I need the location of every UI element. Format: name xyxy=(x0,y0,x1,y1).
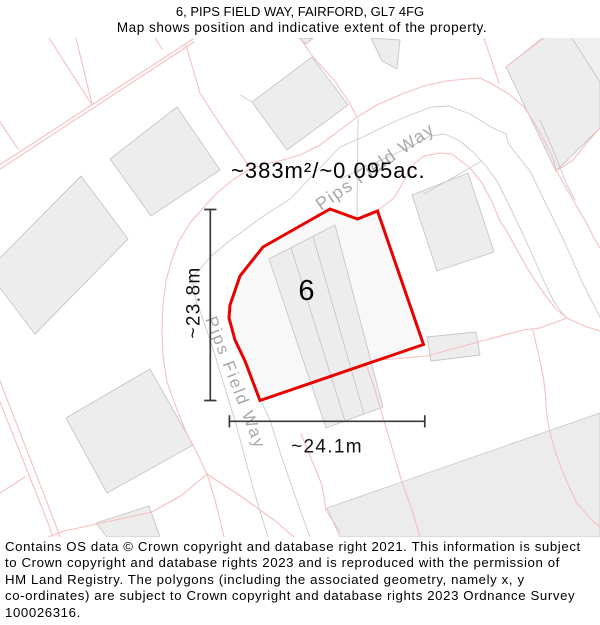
svg-text:6: 6 xyxy=(298,275,314,307)
svg-text:~23.8m: ~23.8m xyxy=(184,266,205,338)
svg-text:~383m²/~0.095ac.: ~383m²/~0.095ac. xyxy=(231,158,426,183)
svg-text:~24.1m: ~24.1m xyxy=(291,437,363,458)
